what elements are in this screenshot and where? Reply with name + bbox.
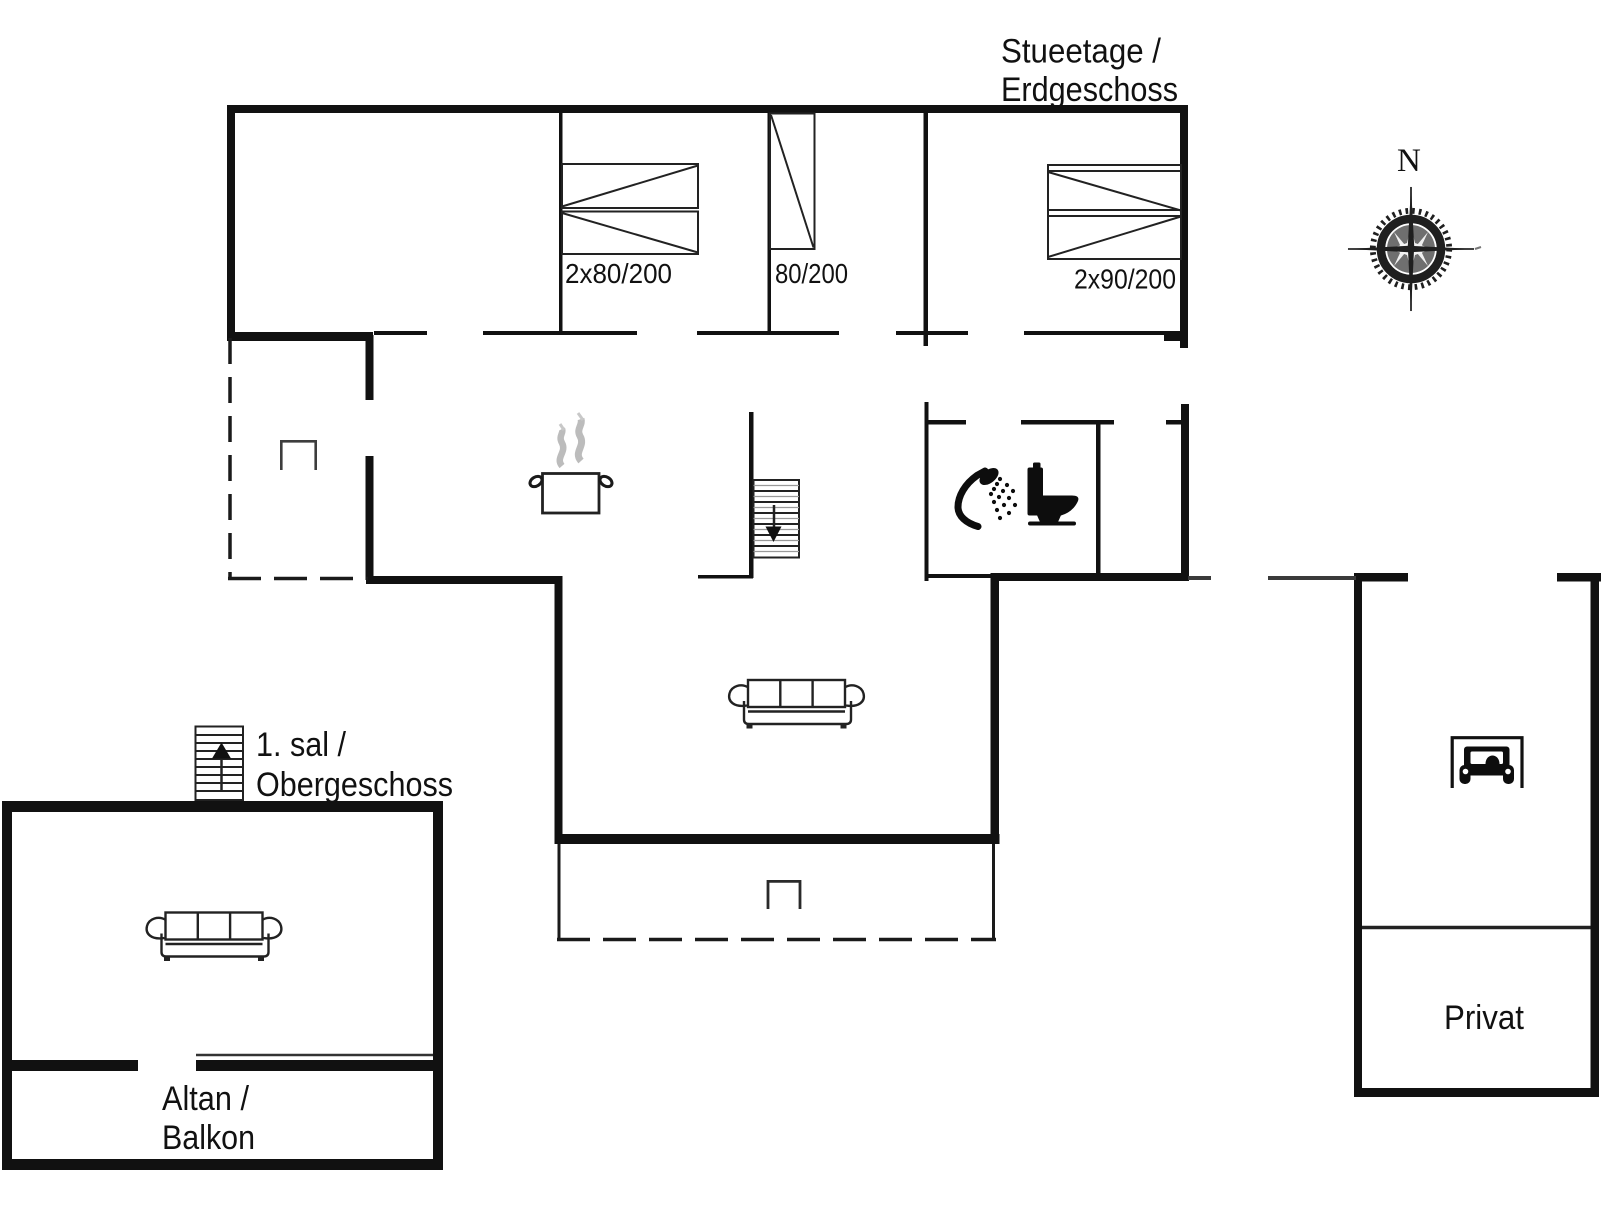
svg-text:1. sal /: 1. sal / (256, 726, 346, 764)
svg-text:2x80/200: 2x80/200 (565, 258, 672, 289)
svg-text:Privat: Privat (1444, 999, 1524, 1037)
svg-text:N: N (1397, 143, 1421, 179)
svg-text:2x90/200: 2x90/200 (1074, 264, 1176, 295)
svg-text:Stueetage /: Stueetage / (1001, 33, 1162, 71)
svg-text:Obergeschoss: Obergeschoss (256, 766, 453, 804)
svg-text:Erdgeschoss: Erdgeschoss (1001, 71, 1178, 109)
svg-text:Balkon: Balkon (162, 1119, 255, 1157)
svg-text:Altan /: Altan / (162, 1080, 249, 1118)
svg-text:80/200: 80/200 (775, 258, 848, 289)
